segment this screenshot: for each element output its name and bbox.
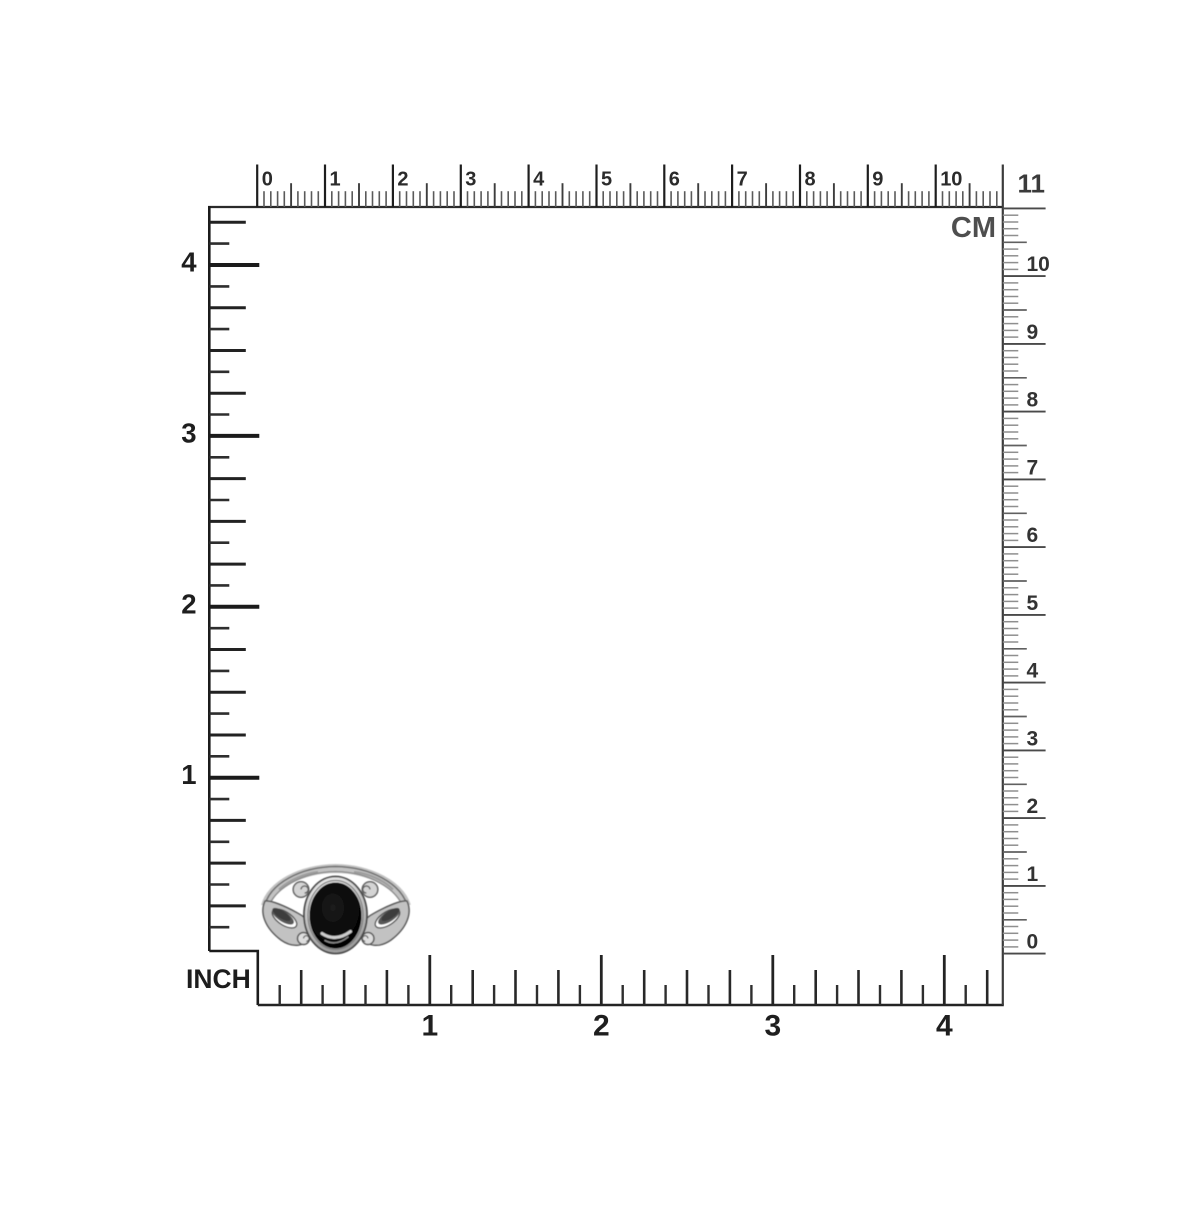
- svg-text:1: 1: [330, 169, 341, 191]
- svg-text:0: 0: [262, 169, 273, 191]
- svg-text:4: 4: [1027, 660, 1039, 683]
- svg-text:4: 4: [181, 247, 197, 278]
- svg-text:3: 3: [764, 1010, 781, 1043]
- svg-text:1: 1: [181, 759, 196, 790]
- svg-text:5: 5: [601, 169, 612, 191]
- svg-text:3: 3: [465, 169, 476, 191]
- svg-text:3: 3: [181, 417, 196, 448]
- svg-text:3: 3: [1027, 727, 1039, 750]
- svg-text:1: 1: [1027, 863, 1039, 886]
- svg-text:2: 2: [181, 588, 196, 619]
- svg-text:8: 8: [1027, 389, 1039, 412]
- svg-text:2: 2: [397, 169, 408, 191]
- svg-text:1: 1: [421, 1010, 438, 1043]
- svg-text:8: 8: [805, 169, 816, 191]
- svg-text:11: 11: [1018, 169, 1046, 199]
- svg-text:6: 6: [1027, 524, 1039, 547]
- svg-text:7: 7: [737, 169, 748, 191]
- svg-text:2: 2: [1027, 795, 1039, 818]
- svg-text:CM: CM: [951, 212, 996, 244]
- svg-text:10: 10: [940, 169, 962, 191]
- svg-text:5: 5: [1027, 592, 1039, 615]
- svg-text:2: 2: [593, 1010, 610, 1043]
- svg-text:7: 7: [1027, 456, 1039, 479]
- svg-text:6: 6: [669, 169, 680, 191]
- svg-text:4: 4: [936, 1010, 953, 1043]
- svg-text:9: 9: [872, 169, 883, 191]
- svg-text:0: 0: [1027, 931, 1039, 954]
- svg-text:4: 4: [533, 169, 545, 191]
- svg-text:10: 10: [1027, 253, 1050, 276]
- svg-text:INCH: INCH: [186, 964, 251, 994]
- svg-text:9: 9: [1027, 321, 1039, 344]
